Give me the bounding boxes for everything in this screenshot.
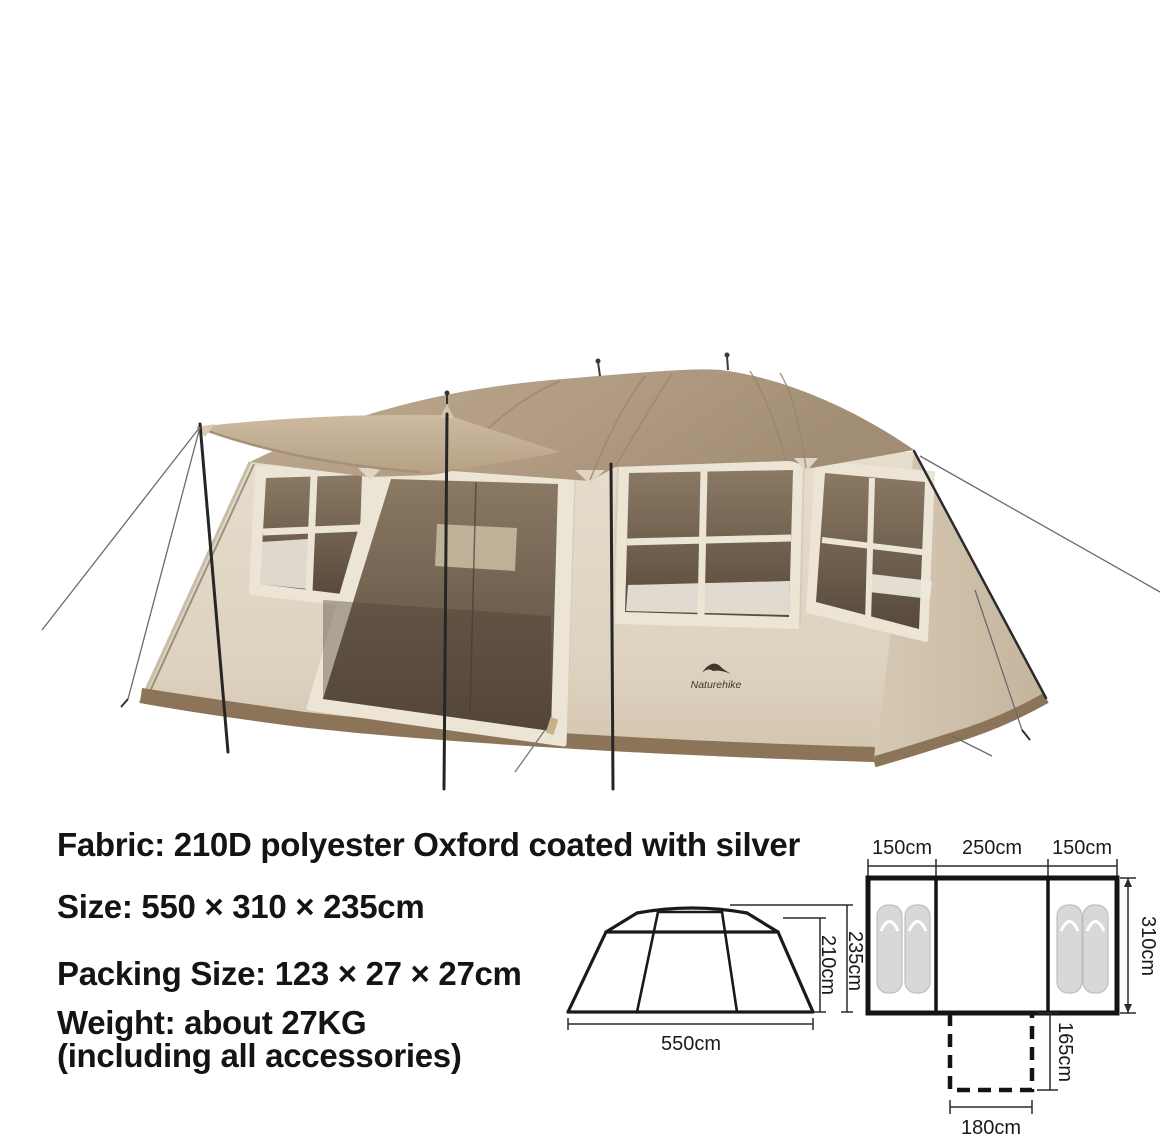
spec-weight-note: (including all accessories) xyxy=(57,1039,462,1072)
depth-label: 310cm xyxy=(1137,916,1159,976)
porch-outline xyxy=(950,1013,1032,1090)
porch-width-dimension xyxy=(950,1100,1032,1114)
tent-photo: Naturehike xyxy=(0,0,1170,810)
spec-weight-value: Weight: about 27KG xyxy=(57,1006,462,1039)
spec-fabric: Fabric: 210D polyester Oxford coated wit… xyxy=(57,826,800,864)
left-room-width-label: 150cm xyxy=(872,837,932,859)
floor-plan-top-dimension xyxy=(868,859,1117,876)
spec-packing-size: Packing Size: 123 × 27 × 27cm xyxy=(57,955,522,993)
side-eave-height-label: 210cm xyxy=(817,935,839,995)
side-view-diagram: 550cm 210cm 235cm xyxy=(545,866,875,1076)
tent-window-right xyxy=(808,463,933,640)
spec-size: Size: 550 × 310 × 235cm xyxy=(57,888,424,926)
tent-window-center-right xyxy=(617,461,801,627)
side-width-label: 550cm xyxy=(661,1033,721,1055)
floor-plan-diagram: 150cm 250cm 150cm 310cm 165cm xyxy=(845,826,1170,1141)
product-image: Naturehike Fabric: 210D polyester Oxford… xyxy=(0,0,1170,1141)
center-room-width-label: 250cm xyxy=(962,837,1022,859)
porch-width-label: 180cm xyxy=(961,1117,1021,1139)
floor-plan-depth-dimension xyxy=(1120,878,1136,1013)
right-room-width-label: 150cm xyxy=(1052,837,1112,859)
spec-weight: Weight: about 27KG (including all access… xyxy=(57,1006,462,1072)
porch-depth-label: 165cm xyxy=(1054,1022,1076,1082)
brand-logo-text: Naturehike xyxy=(691,679,742,691)
side-view-frame xyxy=(568,908,813,1012)
